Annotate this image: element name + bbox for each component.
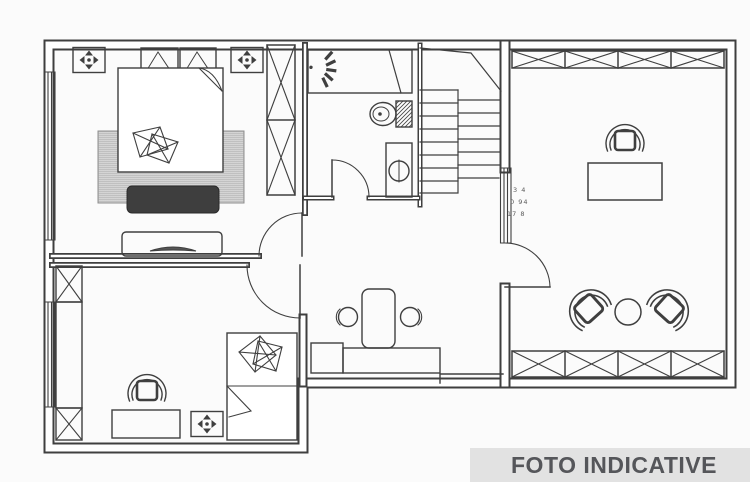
stairs-icon <box>420 48 501 193</box>
bedroom-2 <box>56 266 297 440</box>
shower-icon <box>308 50 412 93</box>
lounge-chair-icon <box>561 281 612 331</box>
desk-icon <box>588 163 662 200</box>
shower-head-icon <box>307 50 337 86</box>
stool-icon <box>401 308 422 327</box>
toilet-icon <box>370 101 412 127</box>
door-icon-bedroom1 <box>259 213 302 256</box>
wardrobe-icon <box>56 408 82 440</box>
desk-icon <box>112 410 180 438</box>
photo-banner: FOTO INDICATIVE <box>470 448 750 482</box>
bedroom-1 <box>73 45 295 256</box>
double-bed-icon <box>118 68 223 172</box>
door-icon-study <box>505 243 550 287</box>
stool-icon <box>336 308 357 327</box>
plan-drawing: 3 4 0 94 17 8 <box>45 45 732 448</box>
svg-text:3 4: 3 4 <box>513 186 526 194</box>
stair-treads-right <box>458 100 499 178</box>
counter-icon <box>311 343 440 373</box>
vent-icon <box>73 48 105 73</box>
wardrobe-icon <box>267 45 295 195</box>
dining-table-icon <box>362 289 395 348</box>
cabinet <box>56 302 82 408</box>
office-chair-icon <box>606 125 644 151</box>
stair-treads-left <box>420 90 458 181</box>
bathroom <box>307 50 412 197</box>
wardrobe-icon <box>512 351 724 377</box>
door-icon-bathroom <box>332 160 369 197</box>
sink-icon <box>386 143 412 197</box>
vent-icon <box>231 48 263 73</box>
wardrobe-icon <box>56 266 82 302</box>
single-bed-icon <box>227 333 297 440</box>
svg-text:17 8: 17 8 <box>507 210 525 218</box>
stair-break-line <box>420 48 501 91</box>
wardrobe-icon <box>512 51 724 68</box>
vent-icon <box>191 412 223 437</box>
bench <box>127 186 219 213</box>
dining-nook <box>311 289 440 373</box>
banner-label: FOTO INDICATIVE <box>511 452 717 478</box>
study-room <box>512 51 724 377</box>
door-icon-bedroom2 <box>247 265 300 318</box>
stair-note: 3 4 0 94 17 8 <box>507 186 528 218</box>
tv-console-icon <box>122 232 222 256</box>
svg-text:0 94: 0 94 <box>510 198 528 206</box>
office-chair-icon <box>128 375 166 401</box>
floor-plan: 3 4 0 94 17 8 FOTO INDICATIVE <box>0 0 750 482</box>
round-table-icon <box>615 299 641 325</box>
lounge-chair-icon <box>646 281 697 331</box>
